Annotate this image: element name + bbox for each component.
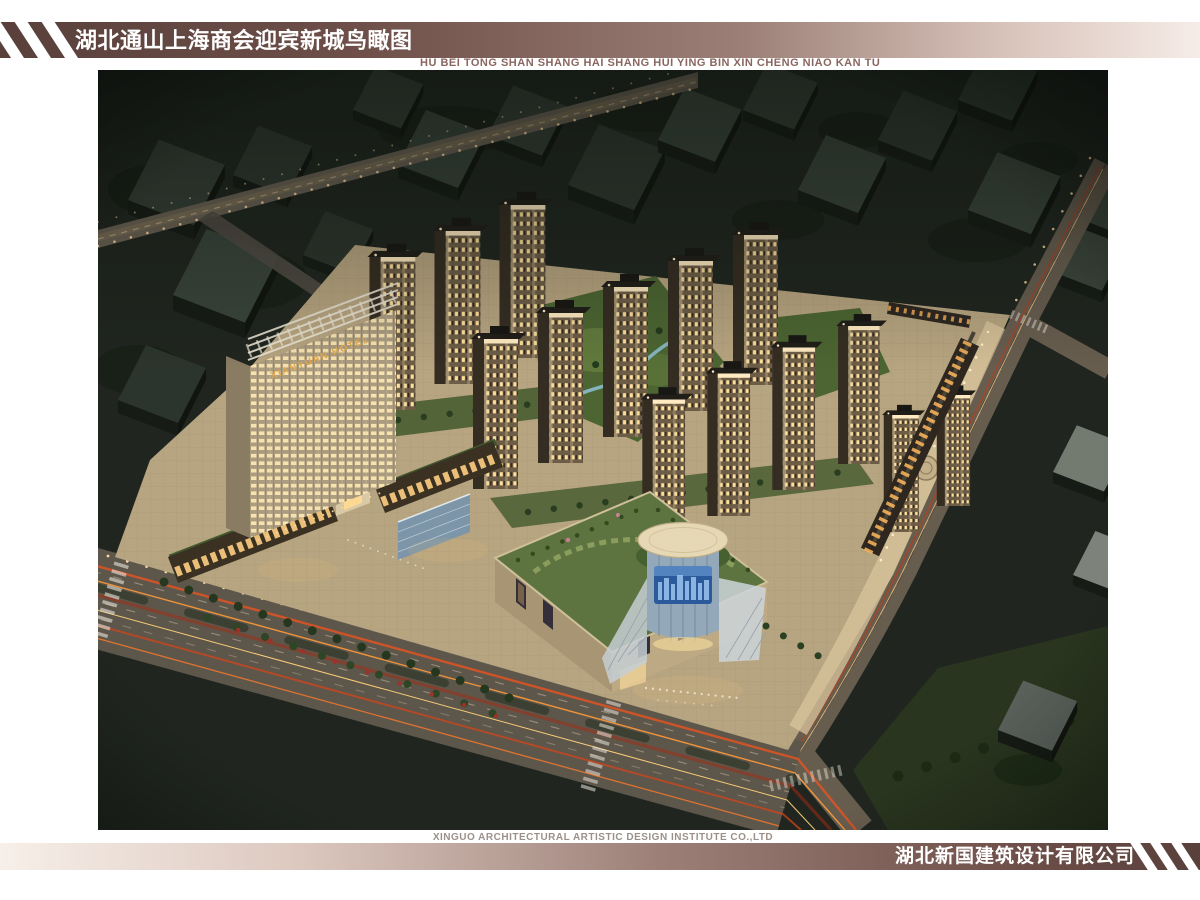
aerial-rendering: XIANYUAN HOTEL [98, 70, 1108, 830]
top-banner: 湖北通山上海商会迎宾新城鸟瞰图 [0, 22, 1200, 58]
aerial-rendering-svg: XIANYUAN HOTEL [98, 70, 1108, 830]
presentation-board: 湖北通山上海商会迎宾新城鸟瞰图 HU BEI TONG SHAN SHANG H… [0, 0, 1200, 900]
company-name: 湖北新国建筑设计有限公司 [895, 843, 1135, 870]
vignette-overlay [98, 70, 1108, 830]
institute-name-en: XINGUO ARCHITECTURAL ARTISTIC DESIGN INS… [98, 832, 1108, 843]
page-title: 湖北通山上海商会迎宾新城鸟瞰图 [75, 22, 413, 58]
bottom-banner: 湖北新国建筑设计有限公司 [0, 843, 1200, 870]
pinyin-subtitle: HU BEI TONG SHAN SHANG HAI SHANG HUI YIN… [420, 57, 880, 69]
